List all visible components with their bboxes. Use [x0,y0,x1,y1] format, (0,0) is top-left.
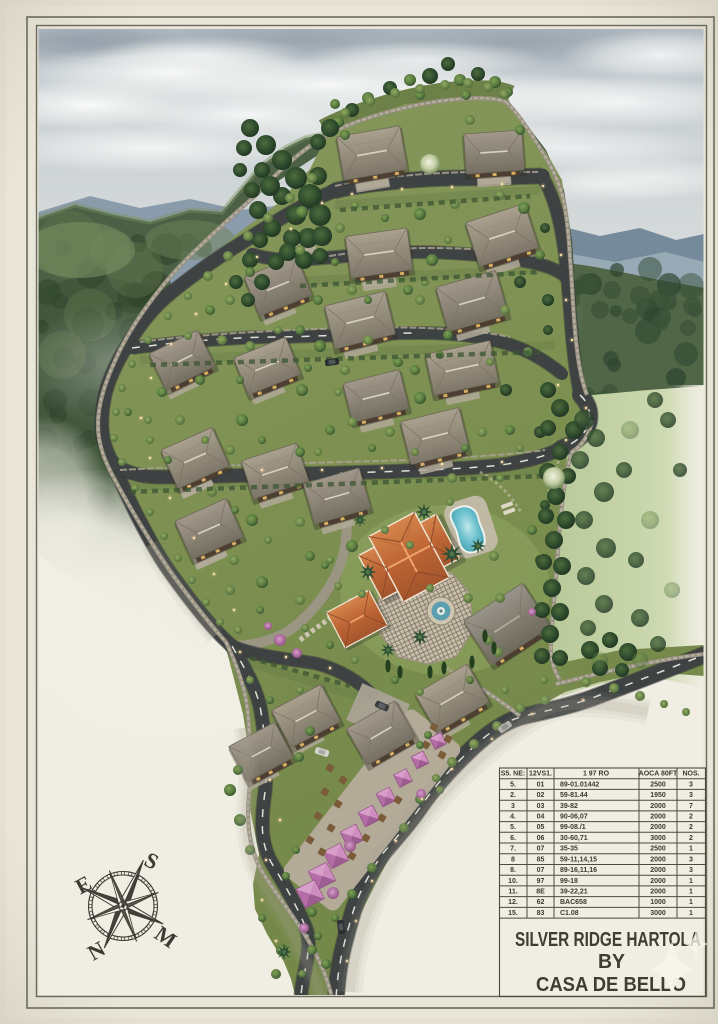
svg-text:2: 2 [689,814,693,821]
svg-text:1: 1 [689,889,693,896]
svg-text:03: 03 [537,803,545,810]
svg-text:90-06,07: 90-06,07 [560,814,588,821]
svg-text:2500: 2500 [650,781,666,788]
svg-text:2000: 2000 [650,867,666,874]
svg-text:1 97 RO: 1 97 RO [583,771,610,778]
svg-text:2500: 2500 [650,846,666,853]
svg-text:04: 04 [537,814,545,821]
svg-text:07: 07 [537,846,545,853]
svg-text:89-16,11,16: 89-16,11,16 [560,867,597,874]
svg-text:1: 1 [689,878,693,885]
svg-text:12VS1.: 12VS1. [529,771,552,778]
svg-text:39-22,21: 39-22,21 [560,889,588,896]
svg-text:89-01.01442: 89-01.01442 [560,781,599,788]
svg-text:85: 85 [537,856,545,863]
svg-text:NOS.: NOS. [682,771,699,778]
svg-text:10.: 10. [508,878,518,885]
svg-text:07: 07 [537,867,545,874]
svg-text:62: 62 [537,899,545,906]
svg-text:97: 97 [537,878,545,885]
svg-text:8.: 8. [510,867,516,874]
svg-text:12.: 12. [508,899,518,906]
svg-text:3: 3 [689,856,693,863]
svg-text:6.: 6. [510,835,516,842]
svg-text:BY: BY [598,950,625,973]
svg-text:8E: 8E [536,889,545,896]
svg-text:1: 1 [689,910,693,917]
svg-text:3: 3 [689,792,693,799]
svg-text:8: 8 [511,856,515,863]
svg-text:05: 05 [537,824,545,831]
svg-text:59-81.44: 59-81.44 [560,792,588,799]
svg-text:2000: 2000 [650,824,666,831]
svg-text:S5. NE:: S5. NE: [501,771,526,778]
svg-text:AOCA 80FT: AOCA 80FT [639,771,678,778]
svg-text:2.: 2. [510,792,516,799]
svg-text:2000: 2000 [650,878,666,885]
svg-text:06: 06 [537,835,545,842]
svg-text:99-08./1: 99-08./1 [560,824,586,831]
svg-text:7.: 7. [510,846,516,853]
svg-text:01: 01 [537,781,545,788]
svg-text:2000: 2000 [650,803,666,810]
svg-text:7: 7 [689,803,693,810]
svg-text:1: 1 [689,899,693,906]
svg-text:39-82: 39-82 [560,803,578,810]
svg-text:3: 3 [689,781,693,788]
svg-text:4.: 4. [510,814,516,821]
svg-text:1000: 1000 [650,899,666,906]
svg-text:2: 2 [689,824,693,831]
svg-text:3: 3 [511,803,515,810]
svg-text:11.: 11. [508,889,517,896]
svg-text:2: 2 [689,835,693,842]
svg-text:15.: 15. [508,910,518,917]
svg-text:C1.08: C1.08 [560,910,579,917]
svg-text:2000: 2000 [650,814,666,821]
svg-text:30-60,71: 30-60,71 [560,835,588,842]
svg-text:5.: 5. [510,824,516,831]
svg-text:3: 3 [689,867,693,874]
svg-text:02: 02 [537,792,545,799]
svg-text:2000: 2000 [650,889,666,896]
svg-text:59-11,14,15: 59-11,14,15 [560,856,597,863]
svg-text:2000: 2000 [650,856,666,863]
svg-text:BAC658: BAC658 [560,899,587,906]
svg-text:3000: 3000 [650,835,666,842]
svg-text:35-35: 35-35 [560,846,578,853]
svg-text:1950: 1950 [650,792,666,799]
svg-text:1: 1 [689,846,693,853]
svg-text:99-18: 99-18 [560,878,578,885]
svg-text:83: 83 [537,910,545,917]
svg-text:3000: 3000 [650,910,666,917]
svg-text:5.: 5. [510,781,516,788]
